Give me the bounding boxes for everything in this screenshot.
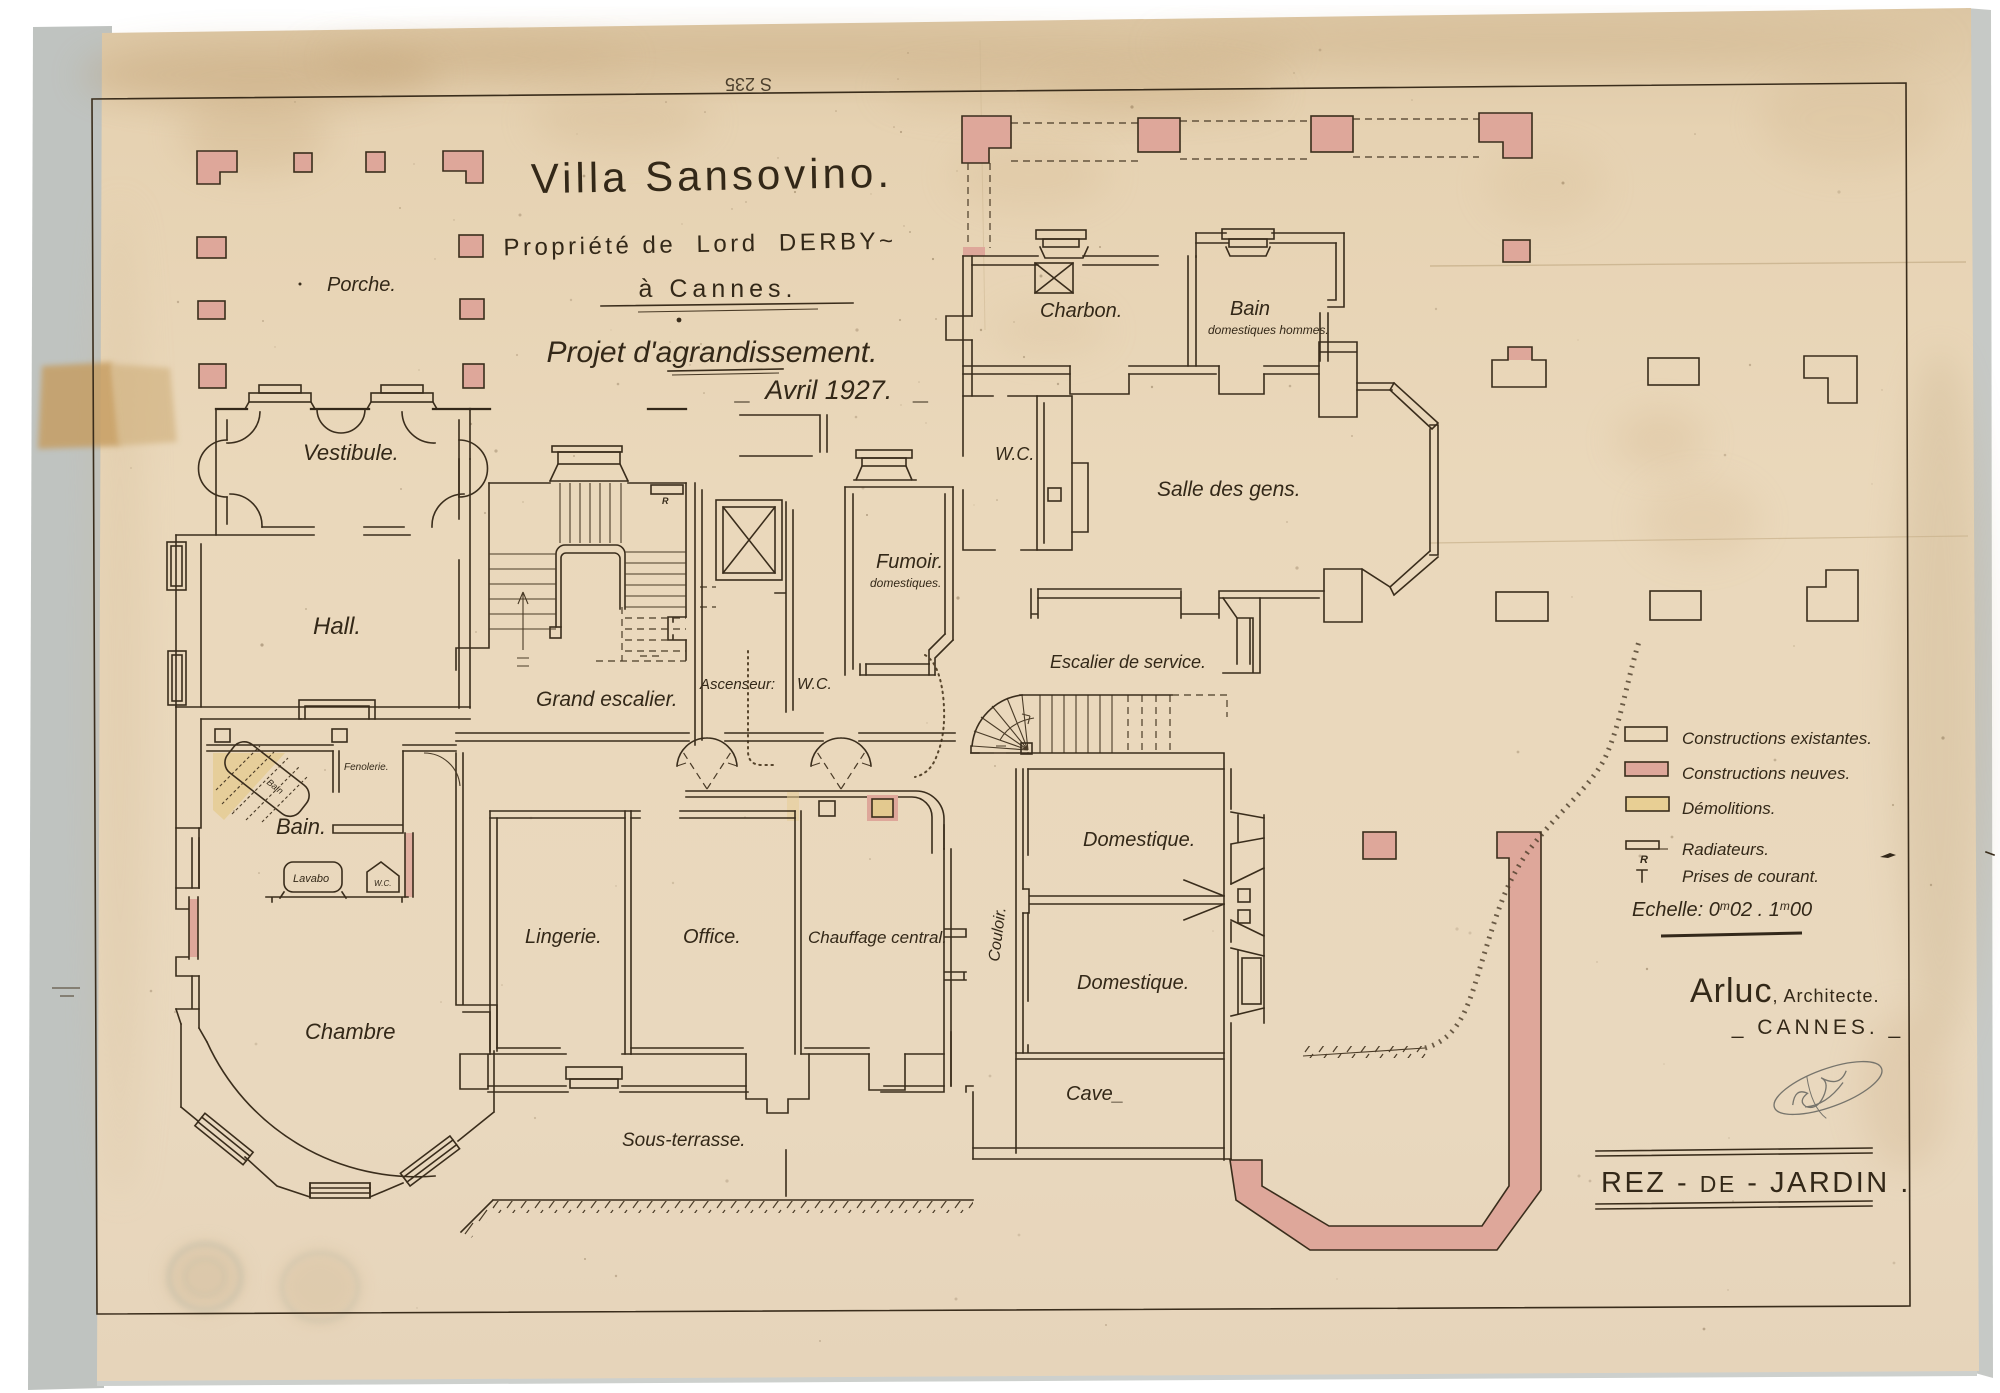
svg-text:W.C.: W.C. bbox=[995, 444, 1034, 464]
svg-text:S 235: S 235 bbox=[725, 74, 772, 94]
svg-text:Chambre: Chambre bbox=[305, 1019, 395, 1044]
svg-text:à Cannes.: à Cannes. bbox=[639, 275, 798, 303]
svg-text:Villa Sansovino.: Villa Sansovino. bbox=[530, 149, 893, 202]
svg-text:Ascenseur:: Ascenseur: bbox=[699, 676, 775, 693]
svg-text:Cave_: Cave_ bbox=[1066, 1083, 1124, 1105]
svg-text:_ CANNES. _: _ CANNES. _ bbox=[1731, 1016, 1904, 1039]
svg-text:Sous-terrasse.: Sous-terrasse. bbox=[622, 1130, 746, 1151]
svg-text:Fumoir.: Fumoir. bbox=[876, 551, 943, 573]
svg-text:Bain: Bain bbox=[1230, 298, 1270, 320]
svg-text:Office.: Office. bbox=[683, 926, 741, 948]
svg-text:_ Avril 1927. _: _ Avril 1927. _ bbox=[733, 375, 930, 405]
svg-text:R: R bbox=[1640, 854, 1648, 866]
svg-text:Lingerie.: Lingerie. bbox=[525, 926, 602, 948]
svg-text:R: R bbox=[662, 496, 669, 506]
svg-text:Chauffage central.: Chauffage central. bbox=[808, 928, 947, 947]
svg-text:W.C.: W.C. bbox=[797, 676, 832, 693]
svg-text:REZ - DE - JARDIN .: REZ - DE - JARDIN . bbox=[1601, 1167, 1911, 1199]
svg-text:Bain.: Bain. bbox=[276, 814, 326, 839]
svg-text:Constructions neuves.: Constructions neuves. bbox=[1682, 764, 1850, 783]
svg-text:Démolitions.: Démolitions. bbox=[1682, 799, 1776, 818]
svg-text:Vestibule.: Vestibule. bbox=[303, 440, 399, 465]
svg-text:domestiques.: domestiques. bbox=[870, 576, 941, 590]
svg-text:Hall.: Hall. bbox=[313, 613, 361, 640]
svg-text:Prises de courant.: Prises de courant. bbox=[1682, 867, 1819, 886]
svg-text:Radiateurs.: Radiateurs. bbox=[1682, 840, 1769, 859]
svg-text:Domestique.: Domestique. bbox=[1083, 829, 1195, 851]
svg-text:Salle des gens.: Salle des gens. bbox=[1157, 478, 1301, 501]
svg-text:Charbon.: Charbon. bbox=[1040, 300, 1122, 322]
svg-text:domestiques hommes.: domestiques hommes. bbox=[1208, 323, 1329, 337]
svg-text:Constructions existantes.: Constructions existantes. bbox=[1682, 729, 1872, 748]
svg-text:Grand escalier.: Grand escalier. bbox=[536, 688, 678, 711]
svg-text:Projet d'agrandissement.: Projet d'agrandissement. bbox=[547, 336, 878, 369]
svg-text:W.C.: W.C. bbox=[374, 879, 391, 888]
svg-text:Lavabo: Lavabo bbox=[293, 873, 329, 885]
svg-text:Escalier de service.: Escalier de service. bbox=[1050, 652, 1206, 672]
svg-text:Domestique.: Domestique. bbox=[1077, 972, 1189, 994]
svg-text:Porche.: Porche. bbox=[327, 274, 396, 296]
svg-text:Fenolerie.: Fenolerie. bbox=[344, 762, 388, 773]
